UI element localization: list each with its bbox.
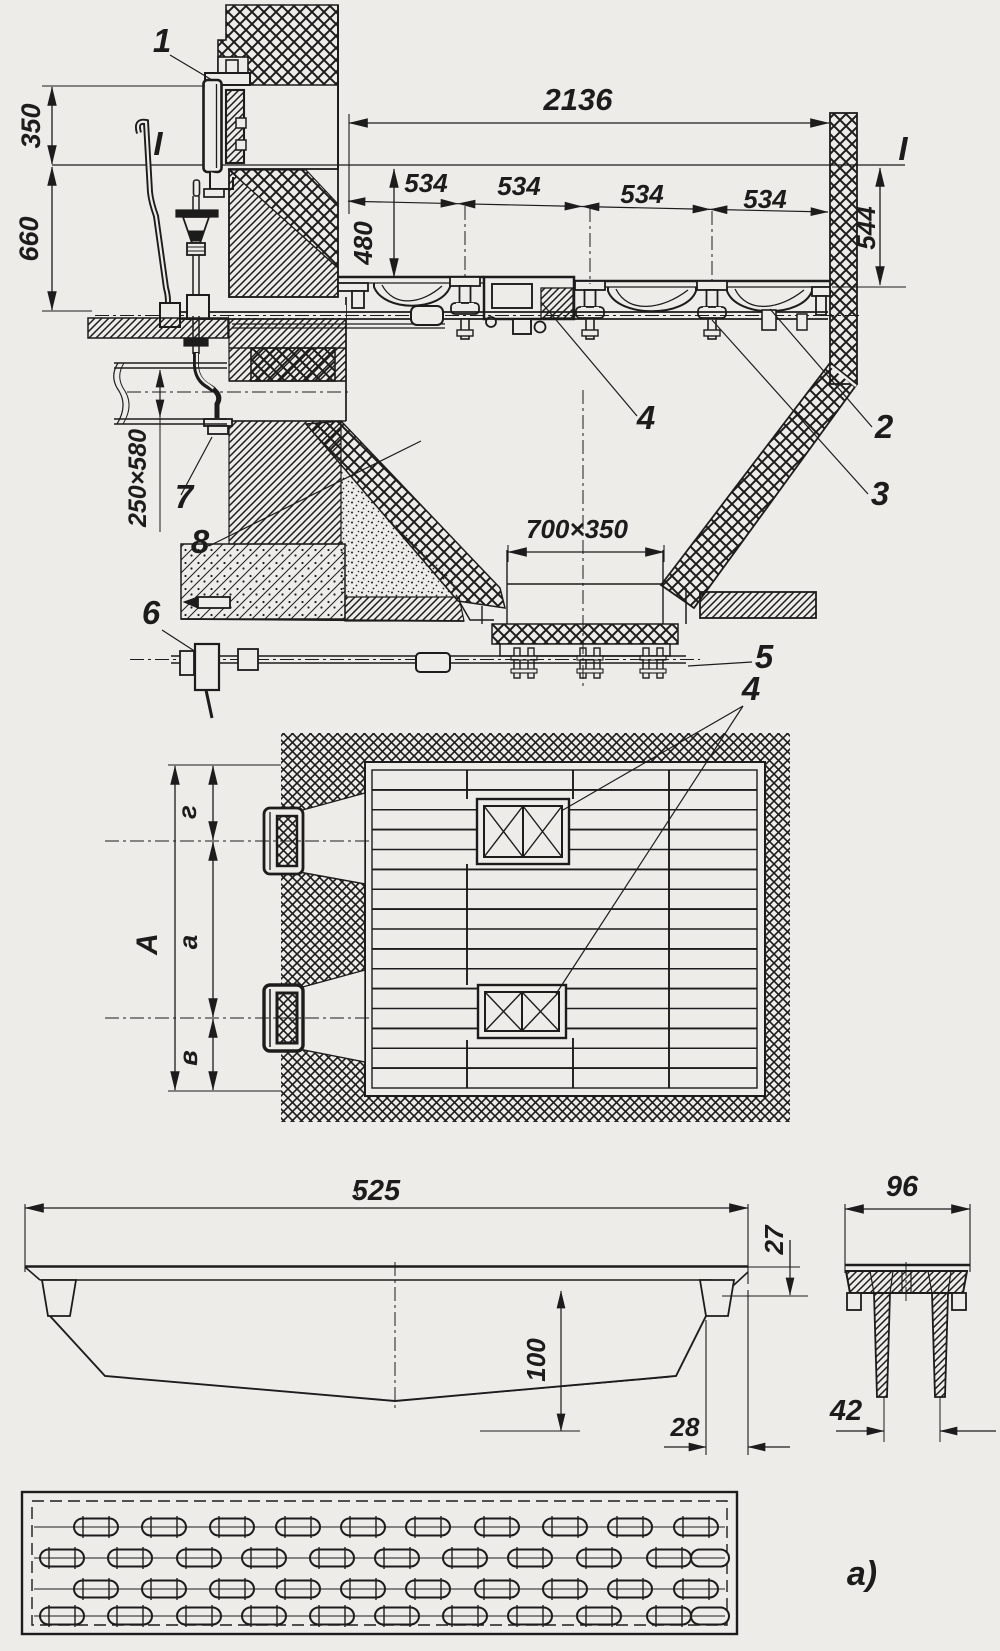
svg-text:96: 96 <box>886 1171 919 1203</box>
svg-text:534: 534 <box>620 179 664 209</box>
svg-text:7: 7 <box>175 478 195 515</box>
svg-text:534: 534 <box>497 171 541 201</box>
svg-text:350: 350 <box>16 103 46 148</box>
svg-text:700×350: 700×350 <box>526 514 628 544</box>
svg-text:250×580: 250×580 <box>124 429 152 528</box>
svg-text:28: 28 <box>670 1412 700 1442</box>
svg-text:6: 6 <box>142 594 161 631</box>
svg-text:г: г <box>172 805 202 819</box>
svg-text:2: 2 <box>874 408 894 445</box>
svg-text:660: 660 <box>14 216 44 261</box>
svg-text:а: а <box>173 935 203 949</box>
svg-text:I: I <box>898 130 908 167</box>
svg-text:525: 525 <box>352 1175 401 1207</box>
svg-text:а): а) <box>847 1555 877 1593</box>
svg-text:534: 534 <box>404 168 448 198</box>
svg-text:3: 3 <box>871 475 889 512</box>
svg-text:1: 1 <box>153 22 171 59</box>
svg-text:А: А <box>131 933 164 956</box>
svg-text:42: 42 <box>829 1395 862 1427</box>
svg-text:544: 544 <box>851 206 881 250</box>
svg-text:I: I <box>153 125 163 162</box>
svg-text:4: 4 <box>741 670 760 707</box>
svg-text:27: 27 <box>759 1224 789 1255</box>
svg-text:4: 4 <box>636 399 655 436</box>
svg-text:8: 8 <box>191 523 210 560</box>
svg-text:480: 480 <box>348 221 378 266</box>
svg-text:534: 534 <box>743 184 787 214</box>
svg-text:100: 100 <box>521 1338 551 1382</box>
svg-text:в: в <box>173 1050 203 1066</box>
svg-text:2136: 2136 <box>543 82 614 117</box>
